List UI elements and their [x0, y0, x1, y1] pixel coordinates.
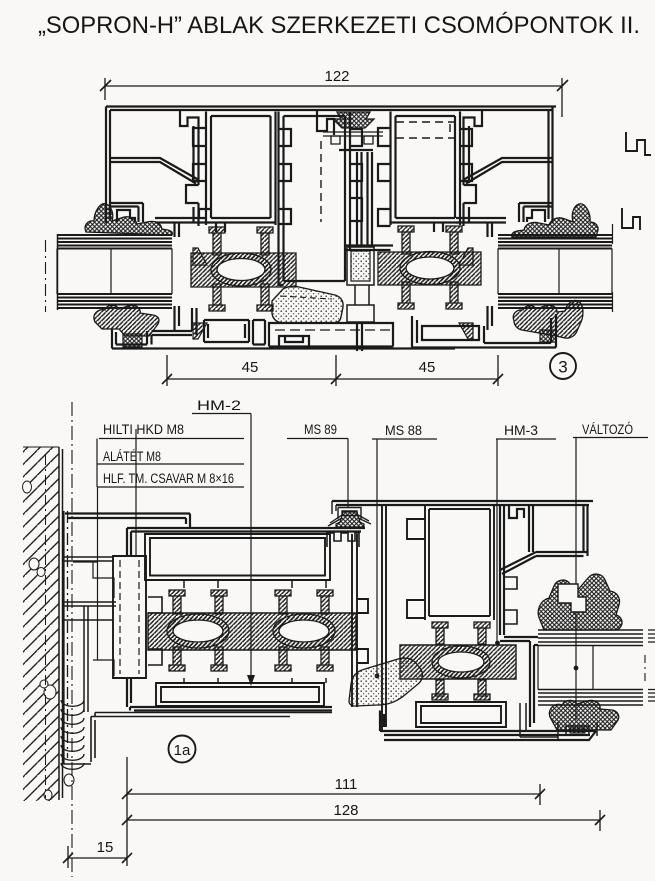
- svg-text:122: 122: [324, 68, 349, 85]
- svg-text:1a: 1a: [174, 742, 191, 759]
- svg-text:HM-3: HM-3: [504, 423, 538, 438]
- svg-text:HLF. TM. CSAVAR M 8×16: HLF. TM. CSAVAR M 8×16: [103, 471, 234, 486]
- svg-text:MS 88: MS 88: [385, 423, 422, 438]
- svg-text:ALÁTÉT M8: ALÁTÉT M8: [103, 449, 161, 464]
- svg-text:15: 15: [97, 839, 114, 856]
- svg-text:MS 89: MS 89: [304, 422, 337, 437]
- svg-text:128: 128: [333, 802, 358, 819]
- svg-text:45: 45: [242, 359, 259, 376]
- svg-text:HILTI HKD M8: HILTI HKD M8: [103, 422, 184, 437]
- svg-text:3: 3: [558, 358, 567, 377]
- svg-text:„SOPRON-H” ABLAK SZERKEZETI CS: „SOPRON-H” ABLAK SZERKEZETI CSOMÓPONTOK …: [38, 12, 640, 39]
- svg-text:HM-2: HM-2: [197, 398, 241, 413]
- svg-text:VÁLTOZÓ: VÁLTOZÓ: [582, 422, 633, 437]
- svg-text:45: 45: [419, 359, 436, 376]
- svg-text:111: 111: [335, 776, 358, 793]
